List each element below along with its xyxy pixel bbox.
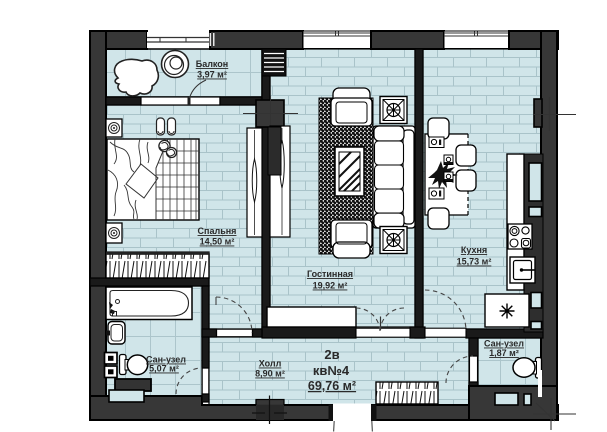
svg-text:15,73 м²: 15,73 м²: [457, 257, 492, 267]
svg-text:Сан-узел: Сан-узел: [484, 339, 524, 349]
svg-text:8,90 м²: 8,90 м²: [255, 369, 285, 379]
svg-text:кв№4: кв№4: [313, 363, 350, 378]
svg-text:1,87 м²: 1,87 м²: [489, 348, 519, 358]
svg-text:Гостинная: Гостинная: [307, 269, 353, 279]
svg-text:2в: 2в: [324, 347, 339, 362]
svg-text:Холл: Холл: [259, 359, 282, 369]
svg-text:Кухня: Кухня: [461, 245, 487, 255]
svg-text:3,97 м²: 3,97 м²: [197, 70, 227, 80]
svg-text:Спальня: Спальня: [198, 226, 237, 236]
svg-text:14,50 м²: 14,50 м²: [200, 237, 235, 247]
svg-text:69,76 м²: 69,76 м²: [308, 379, 356, 393]
svg-text:5,07 м²: 5,07 м²: [149, 364, 179, 374]
svg-text:Балкон: Балкон: [196, 59, 229, 69]
svg-text:19,92 м²: 19,92 м²: [313, 281, 348, 291]
